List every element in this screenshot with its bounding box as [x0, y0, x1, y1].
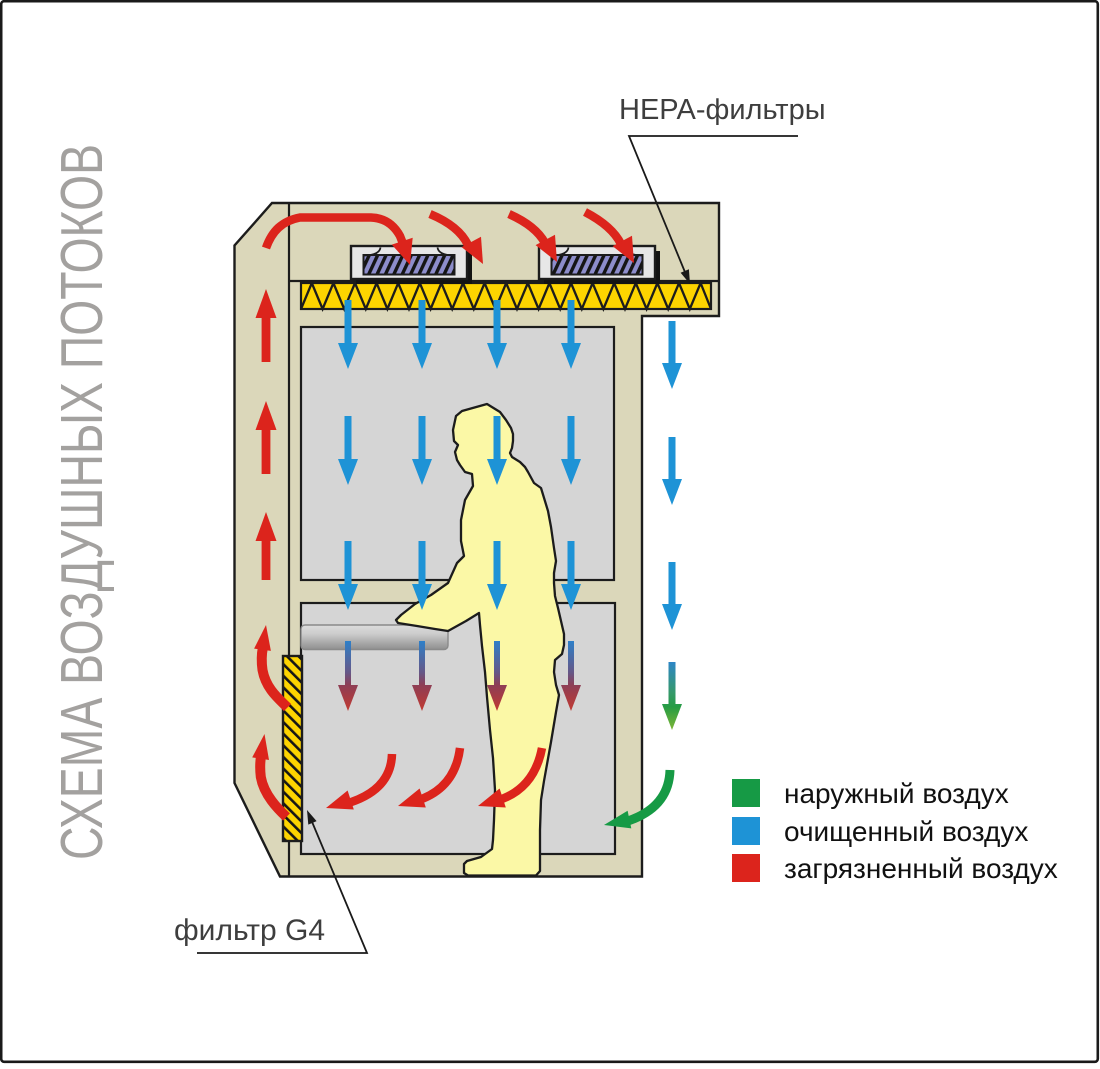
svg-text:HEPA-фильтры: HEPA-фильтры — [619, 94, 826, 126]
svg-text:фильтр G4: фильтр G4 — [174, 914, 325, 947]
svg-text:загрязненный воздух: загрязненный воздух — [784, 853, 1058, 884]
svg-text:СХЕМА ВОЗДУШНЫХ ПОТОКОВ: СХЕМА ВОЗДУШНЫХ ПОТОКОВ — [49, 144, 115, 860]
svg-text:очищенный воздух: очищенный воздух — [784, 816, 1028, 847]
svg-text:наружный воздух: наружный воздух — [784, 778, 1009, 809]
